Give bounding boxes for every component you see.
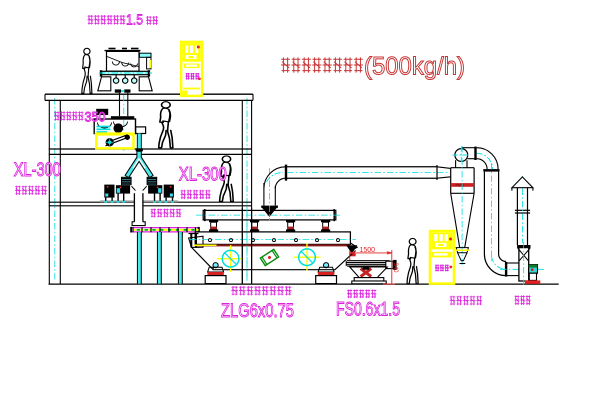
svg-text:P800: P800	[456, 183, 464, 187]
svg-text:340: 340	[392, 263, 398, 274]
svg-text:FS0.6x1.5: FS0.6x1.5	[336, 300, 400, 321]
svg-text:XL-300: XL-300	[179, 165, 227, 186]
svg-text:350: 350	[85, 109, 106, 125]
svg-text:(500kg/h): (500kg/h)	[364, 52, 465, 80]
svg-text:1.5: 1.5	[126, 12, 143, 29]
svg-text:ZLG6x0.75: ZLG6x0.75	[221, 300, 294, 322]
svg-text:1500: 1500	[360, 247, 376, 254]
svg-text:XL-300: XL-300	[14, 159, 61, 181]
